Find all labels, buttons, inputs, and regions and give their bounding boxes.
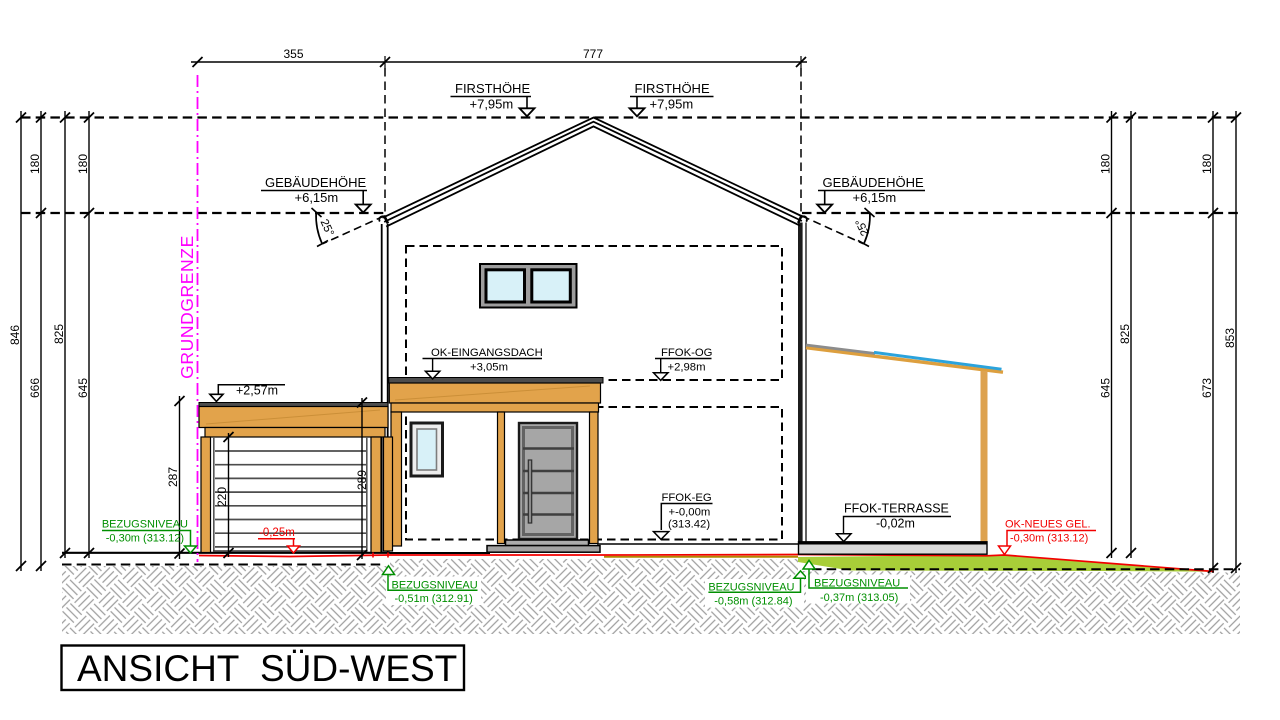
svg-text:287: 287 <box>166 467 180 487</box>
svg-text:GEBÄUDEHÖHE: GEBÄUDEHÖHE <box>823 175 924 190</box>
svg-text:-0,30m (313.12): -0,30m (313.12) <box>1010 533 1088 545</box>
svg-text:FIRSTHÖHE: FIRSTHÖHE <box>635 81 710 96</box>
svg-text:645: 645 <box>76 378 90 398</box>
svg-text:OK-NEUES GEL.: OK-NEUES GEL. <box>1005 519 1091 531</box>
svg-text:BEZUGSNIVEAU: BEZUGSNIVEAU <box>102 519 188 531</box>
svg-text:+6,15m: +6,15m <box>295 190 339 205</box>
svg-text:-0,37m (313.05): -0,37m (313.05) <box>820 592 898 604</box>
svg-text:-0,51m (312.91): -0,51m (312.91) <box>395 593 473 605</box>
svg-text:645: 645 <box>1099 378 1113 398</box>
svg-text:180: 180 <box>28 154 42 174</box>
svg-text:355: 355 <box>283 47 303 61</box>
svg-text:777: 777 <box>583 47 603 61</box>
svg-text:-0,30m (313.12): -0,30m (313.12) <box>106 533 184 545</box>
svg-text:FFOK-OG: FFOK-OG <box>661 347 712 359</box>
svg-text:FIRSTHÖHE: FIRSTHÖHE <box>455 81 530 96</box>
svg-text:BEZUGSNIVEAU: BEZUGSNIVEAU <box>708 581 794 593</box>
svg-text:GEBÄUDEHÖHE: GEBÄUDEHÖHE <box>265 175 366 190</box>
svg-text:+2,98m: +2,98m <box>668 362 706 374</box>
svg-text:FFOK-EG: FFOK-EG <box>662 492 712 504</box>
svg-text:+2,57m: +2,57m <box>236 384 278 398</box>
svg-text:BEZUGSNIVEAU: BEZUGSNIVEAU <box>392 579 478 591</box>
svg-text:BEZUGSNIVEAU: BEZUGSNIVEAU <box>814 577 900 589</box>
svg-text:180: 180 <box>1099 154 1113 174</box>
svg-text:-0,58m (312.84): -0,58m (312.84) <box>714 596 792 608</box>
svg-text:666: 666 <box>28 378 42 398</box>
svg-text:-0,25m: -0,25m <box>259 527 295 539</box>
svg-text:(313.42): (313.42) <box>668 518 710 530</box>
svg-text:825: 825 <box>1118 324 1132 344</box>
svg-text:853: 853 <box>1223 328 1237 348</box>
svg-text:ANSICHT SÜD-WEST: ANSICHT SÜD-WEST <box>77 648 457 689</box>
svg-text:825: 825 <box>52 324 66 344</box>
svg-text:OK-EINGANGSDACH: OK-EINGANGSDACH <box>431 347 543 359</box>
svg-text:289: 289 <box>355 470 369 490</box>
svg-text:673: 673 <box>1200 378 1214 398</box>
svg-text:+3,05m: +3,05m <box>470 362 508 374</box>
svg-text:846: 846 <box>8 325 22 345</box>
svg-text:GRUNDGRENZE: GRUNDGRENZE <box>177 235 197 379</box>
svg-text:+7,95m: +7,95m <box>650 97 694 112</box>
svg-text:180: 180 <box>1200 154 1214 174</box>
svg-text:220: 220 <box>215 487 229 507</box>
svg-text:+6,15m: +6,15m <box>853 190 897 205</box>
svg-text:+7,95m: +7,95m <box>470 97 514 112</box>
svg-text:FFOK-TERRASSE: FFOK-TERRASSE <box>844 502 949 516</box>
svg-text:+-0,00m: +-0,00m <box>669 507 711 519</box>
svg-text:-0,02m: -0,02m <box>876 517 915 531</box>
svg-text:180: 180 <box>76 154 90 174</box>
